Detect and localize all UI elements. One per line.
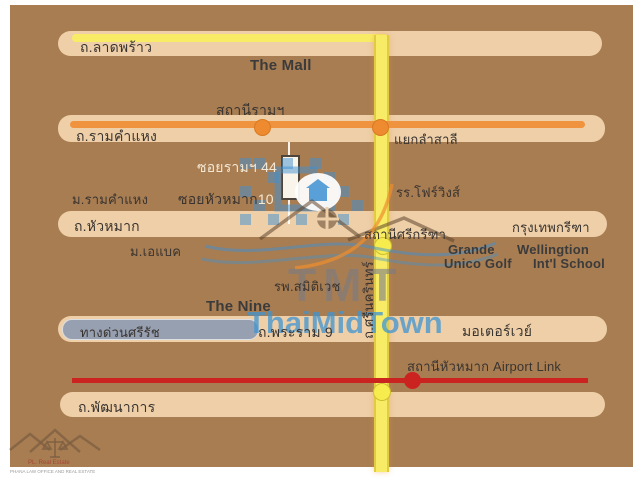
road-label-lat-phrao: ถ.ลาดพร้าว <box>80 37 152 59</box>
house-icon <box>306 179 330 201</box>
place-label-samitivej: รพ.สมิติเวช <box>274 276 340 297</box>
place-label-abac: ม.เอแบค <box>130 241 181 262</box>
road-label-phatthanakan: ถ.พัฒนาการ <box>78 397 155 419</box>
station-label-ram: สถานีรามฯ <box>216 100 285 122</box>
place-label-four-wings: รร.โฟร์วิงส์ <box>396 182 460 203</box>
road-label-soi-hua-mak-10: ซอยหัวหมาก10 <box>178 189 274 211</box>
place-label-the-nine: The Nine <box>206 298 271 315</box>
road-label-expressway: ทางด่วนศรีรัช <box>80 322 160 343</box>
road-label-rama9: ถ.พระราม 9 <box>258 322 333 344</box>
place-label-ramkhamhaeng-university: ม.รามคำแหง <box>72 189 148 210</box>
station-label-lam-sali: แยกลำสาลี <box>394 129 458 150</box>
hua-mak-yellow-dot <box>373 383 391 401</box>
road-label-krungthep-kreetha: กรุงเทพกรีฑา <box>512 217 590 238</box>
lam-sali-intersection-dot <box>372 119 389 136</box>
road-label-ramkhamhaeng: ถ.รามคำแหง <box>76 126 157 148</box>
map-canvas: TMT ThaiMidTown ถ.ลาดพร้าว ถ.รามคำแหง ถ.… <box>10 5 633 467</box>
place-label-grande: Grande <box>448 242 495 257</box>
soi-hua-mak-text: ซอยหัวหมาก <box>178 191 258 207</box>
map-screenshot: TMT ThaiMidTown ถ.ลาดพร้าว ถ.รามคำแหง ถ.… <box>0 0 640 480</box>
road-label-soi-ram-44: ซอยรามฯ 44 <box>197 157 277 179</box>
place-label-the-mall: The Mall <box>250 57 312 74</box>
station-label-hua-mak-airport-link: สถานีหัวหมาก Airport Link <box>407 356 561 377</box>
road-label-srinagarindra: ถ.ศรีนครินทร์ <box>358 245 374 355</box>
airport-link-line <box>72 378 588 383</box>
road-label-motorway: มอเตอร์เวย์ <box>462 321 532 343</box>
place-label-wellingtion: Wellingtion <box>517 242 589 257</box>
place-label-intl-school: Int'l School <box>533 256 605 271</box>
logo-ellipse <box>295 173 341 211</box>
station-label-si-kritha: สถานีศรีกรีฑา <box>364 224 446 245</box>
project-location-marker <box>281 155 300 200</box>
road-label-hua-mak: ถ.หัวหมาก <box>74 216 140 238</box>
soi-hua-mak-number: 10 <box>258 191 274 207</box>
place-label-unico-golf: Unico Golf <box>444 256 512 271</box>
corner-logo-subtitle: PHANA LAW OFFICE AND REAL ESTATE <box>10 469 95 474</box>
